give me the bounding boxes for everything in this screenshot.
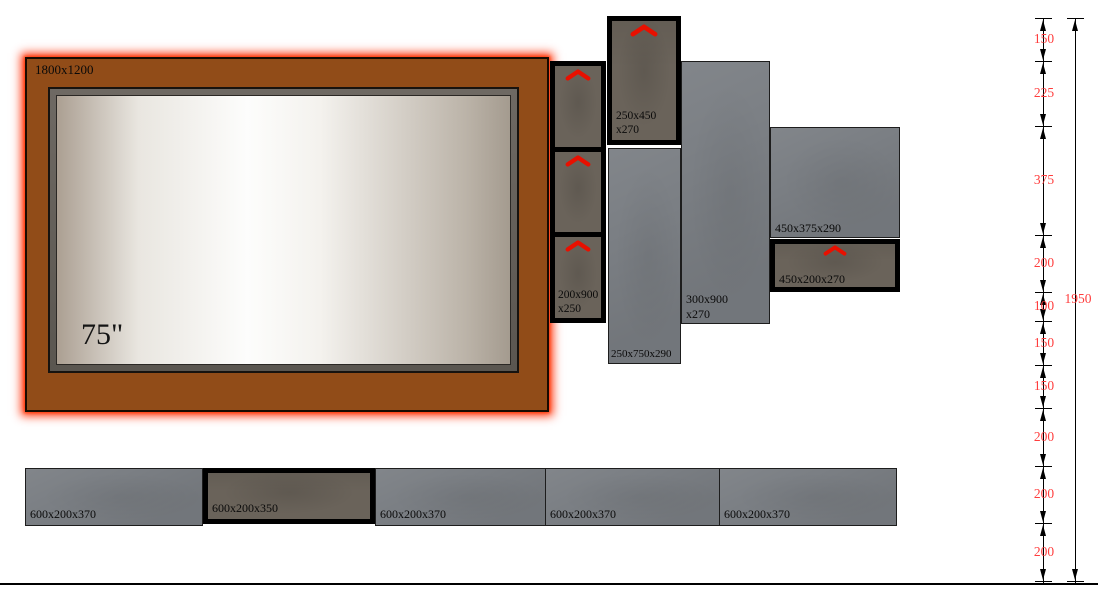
door-swing-chevron-up-icon	[565, 69, 591, 81]
cabinet-shelf-open[interactable]: 450x375x290	[770, 127, 900, 238]
cabinet-size-label: 600x200x370	[724, 507, 790, 521]
dimension-tick	[1035, 126, 1052, 127]
arrow-up-icon	[1040, 63, 1046, 74]
cabinet-size-label: 600x200x370	[550, 507, 616, 521]
arrow-down-icon	[1040, 49, 1046, 60]
base-cabinet[interactable]: 600x200x370	[25, 468, 203, 526]
tv-screen: 75"	[56, 95, 511, 365]
cabinet-size-label: 250x750x290	[611, 348, 672, 361]
door-swing-chevron-up-icon	[565, 155, 591, 167]
dimension-tick	[1035, 292, 1052, 293]
arrow-up-icon	[1040, 20, 1046, 31]
dimension-tick	[1035, 61, 1052, 62]
arrow-up-icon	[1040, 525, 1046, 536]
dimension-tick	[1035, 235, 1052, 236]
arrow-up-icon	[1072, 20, 1078, 31]
cabinet-open-column[interactable]: 300x900 x270	[681, 61, 770, 324]
floor-line	[0, 583, 1098, 585]
base-cabinet[interactable]: 600x200x370	[719, 468, 897, 526]
dimension-total-value: 1950	[1053, 291, 1098, 307]
dimension-value: 225	[1019, 85, 1069, 101]
dimension-value: 200	[1019, 486, 1069, 502]
dimension-value: 150	[1019, 378, 1069, 394]
door-swing-chevron-up-icon	[822, 245, 848, 256]
dimension-tick	[1035, 581, 1052, 582]
dimension-tick	[1035, 365, 1052, 366]
cabinet-size-label: 450x375x290	[775, 221, 841, 235]
base-cabinet[interactable]: 600x200x370	[545, 468, 720, 526]
arrow-down-icon	[1040, 569, 1046, 580]
cabinet-shelf-door[interactable]: 450x200x270	[770, 239, 900, 292]
arrow-up-icon	[1040, 323, 1046, 334]
arrow-down-icon	[1040, 114, 1046, 125]
dimension-value: 200	[1019, 544, 1069, 560]
arrow-up-icon	[1040, 367, 1046, 378]
dimension-tick	[1035, 321, 1052, 322]
dimension-value: 150	[1019, 31, 1069, 47]
arrow-down-icon	[1040, 511, 1046, 522]
cabinet-open-tall[interactable]: 250x750x290	[608, 148, 681, 364]
door-swing-chevron-up-icon	[565, 240, 591, 252]
door-swing-chevron-up-icon	[629, 24, 659, 37]
base-cabinet[interactable]: 600x200x370	[375, 468, 546, 526]
cabinet-size-label: 450x200x270	[779, 272, 845, 286]
cabinet-door[interactable]	[555, 66, 601, 147]
arrow-up-icon	[1040, 237, 1046, 248]
dimension-value: 200	[1019, 429, 1069, 445]
dimension-value: 150	[1019, 335, 1069, 351]
arrow-down-icon	[1040, 353, 1046, 364]
dimension-tick	[1067, 581, 1084, 582]
cabinet-size-label: 300x900 x270	[686, 292, 728, 321]
arrow-up-icon	[1040, 468, 1046, 479]
arrow-down-icon	[1040, 396, 1046, 407]
wall-unit-diagram: 1800x1200 75" 200x900 x250 250x450 x270	[0, 0, 1098, 597]
arrow-down-icon	[1040, 280, 1046, 291]
tv-size-label: 75"	[81, 318, 123, 352]
dimension-tick	[1067, 18, 1084, 19]
base-cabinet-highlighted[interactable]: 600x200x350	[203, 468, 375, 524]
arrow-up-icon	[1040, 410, 1046, 421]
cabinet-upper-door[interactable]: 250x450 x270	[607, 16, 681, 145]
cabinet-tall-doors[interactable]: 200x900 x250	[550, 61, 606, 323]
cabinet-size-label: 250x450 x270	[616, 110, 656, 138]
arrow-down-icon	[1072, 569, 1078, 580]
tv-dimension-label: 1800x1200	[35, 62, 94, 78]
cabinet-door[interactable]: 200x900 x250	[555, 237, 601, 318]
cabinet-size-label: 600x200x370	[380, 507, 446, 521]
cabinet-size-label: 600x200x350	[212, 501, 278, 515]
arrow-up-icon	[1040, 128, 1046, 139]
dimension-tick	[1035, 408, 1052, 409]
dimension-tick	[1035, 523, 1052, 524]
tv-panel[interactable]: 1800x1200 75"	[25, 57, 549, 412]
cabinet-size-label: 600x200x370	[30, 507, 96, 521]
dimension-value: 375	[1019, 172, 1069, 188]
dimension-tick	[1035, 466, 1052, 467]
dimension-tick	[1035, 18, 1052, 19]
tv-bezel: 75"	[48, 87, 519, 373]
cabinet-size-label: 200x900 x250	[558, 289, 598, 317]
dimension-value: 200	[1019, 255, 1069, 271]
arrow-down-icon	[1040, 223, 1046, 234]
arrow-down-icon	[1040, 454, 1046, 465]
cabinet-door[interactable]	[555, 152, 601, 233]
